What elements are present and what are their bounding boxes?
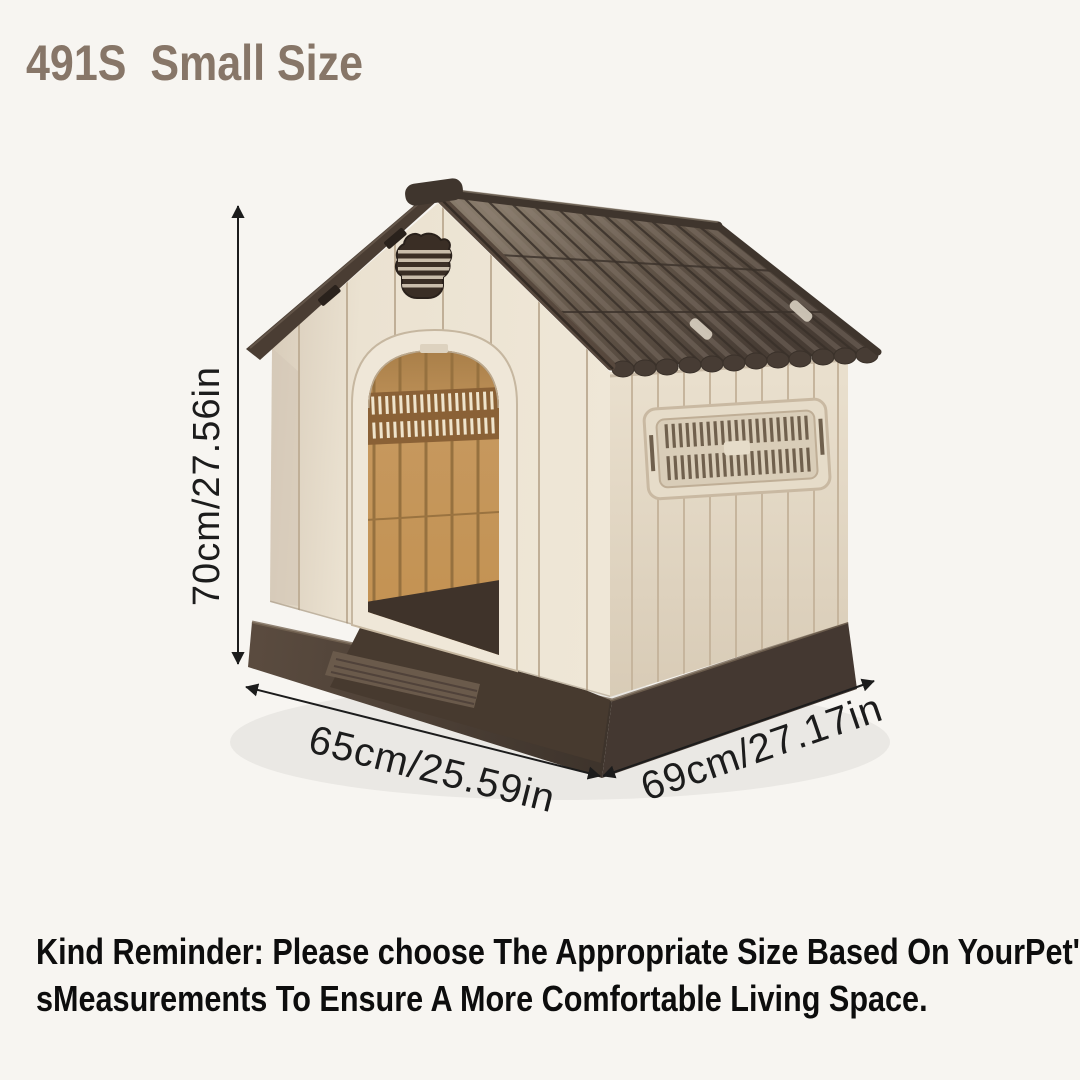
product-size-diagram: 491S Small Size xyxy=(0,0,1080,1080)
reminder-line-2: sMeasurements To Ensure A More Comfortab… xyxy=(36,976,1080,1023)
kind-reminder-text: Kind Reminder: Please choose The Appropr… xyxy=(36,929,1080,1023)
height-dimension-label: 70cm/27.56in xyxy=(186,366,228,606)
door-top-clip xyxy=(420,344,448,353)
doorway xyxy=(352,330,517,671)
dog-house-figure: 70cm/27.56in 65cm/25.59in 69cm/27.17in xyxy=(0,0,1080,1080)
side-vent xyxy=(643,398,830,499)
reminder-line-1: Kind Reminder: Please choose The Appropr… xyxy=(36,929,1080,976)
interior-vent-band xyxy=(363,387,503,445)
